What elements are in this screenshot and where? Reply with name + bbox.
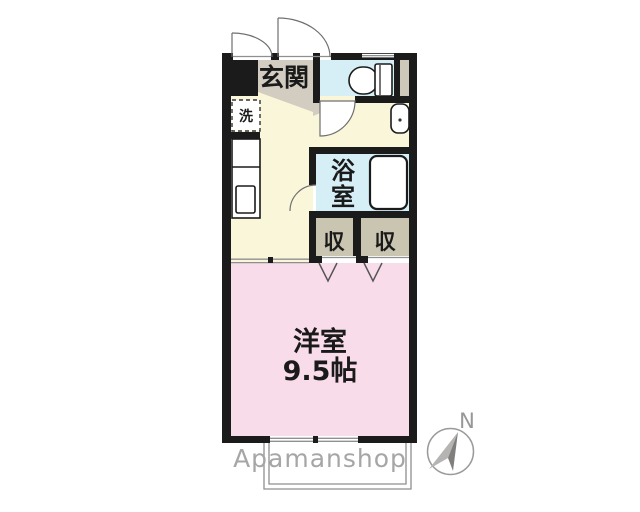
western-room-label: 洋室	[293, 326, 347, 358]
compass-north-label: N	[459, 409, 475, 433]
wall-bottom-segment	[313, 436, 318, 443]
wall-closet-bottom	[356, 256, 368, 263]
door-arc-small	[232, 33, 272, 57]
floorplan-page: N 玄関 洗 浴 室 収 収 洋室 9.5帖 Apamanshop	[0, 0, 640, 512]
wall-kitchen-stub	[230, 132, 260, 139]
wall-top-segment	[222, 53, 233, 60]
wall-bottom-segment	[358, 436, 417, 443]
toilet-bowl	[349, 67, 378, 94]
wall-bathroom-top	[309, 147, 410, 154]
wall-closet-top	[309, 211, 410, 218]
entrance-door-arc	[278, 18, 330, 57]
closet-left-label: 収	[324, 230, 346, 254]
wall-bathroom-left	[309, 147, 316, 185]
wall-bottom-segment	[222, 436, 270, 443]
bathtub	[370, 156, 407, 209]
partition-tick	[268, 257, 273, 263]
toilet-tank	[375, 64, 392, 96]
genkan-label: 玄関	[259, 63, 309, 92]
wall-bathroom-left	[309, 211, 316, 263]
closet-right-label: 収	[375, 230, 397, 254]
laundry-label: 洗	[239, 108, 253, 125]
wall-closet-bottom	[309, 256, 322, 263]
wall-toilet-bottom	[355, 96, 410, 103]
kitchen-sink	[236, 186, 255, 213]
wall-toilet-shaft	[394, 53, 400, 103]
wall-right	[409, 53, 417, 443]
pipe-shaft	[400, 60, 410, 96]
bathroom-label-char1: 浴	[331, 157, 356, 185]
wall-left	[222, 53, 231, 443]
washbasin-drain	[398, 118, 401, 121]
wall-closet-divider	[353, 218, 361, 256]
entrance-block	[230, 60, 258, 96]
compass: N	[428, 409, 475, 475]
wall-genkan-toilet	[313, 53, 320, 103]
watermark: Apamanshop	[233, 444, 407, 473]
floorplan-drawing: N 玄関 洗 浴 室 収 収 洋室 9.5帖 Apamanshop	[0, 0, 640, 512]
western-room-size: 9.5帖	[283, 356, 358, 387]
bathroom-label-char2: 室	[331, 183, 355, 211]
